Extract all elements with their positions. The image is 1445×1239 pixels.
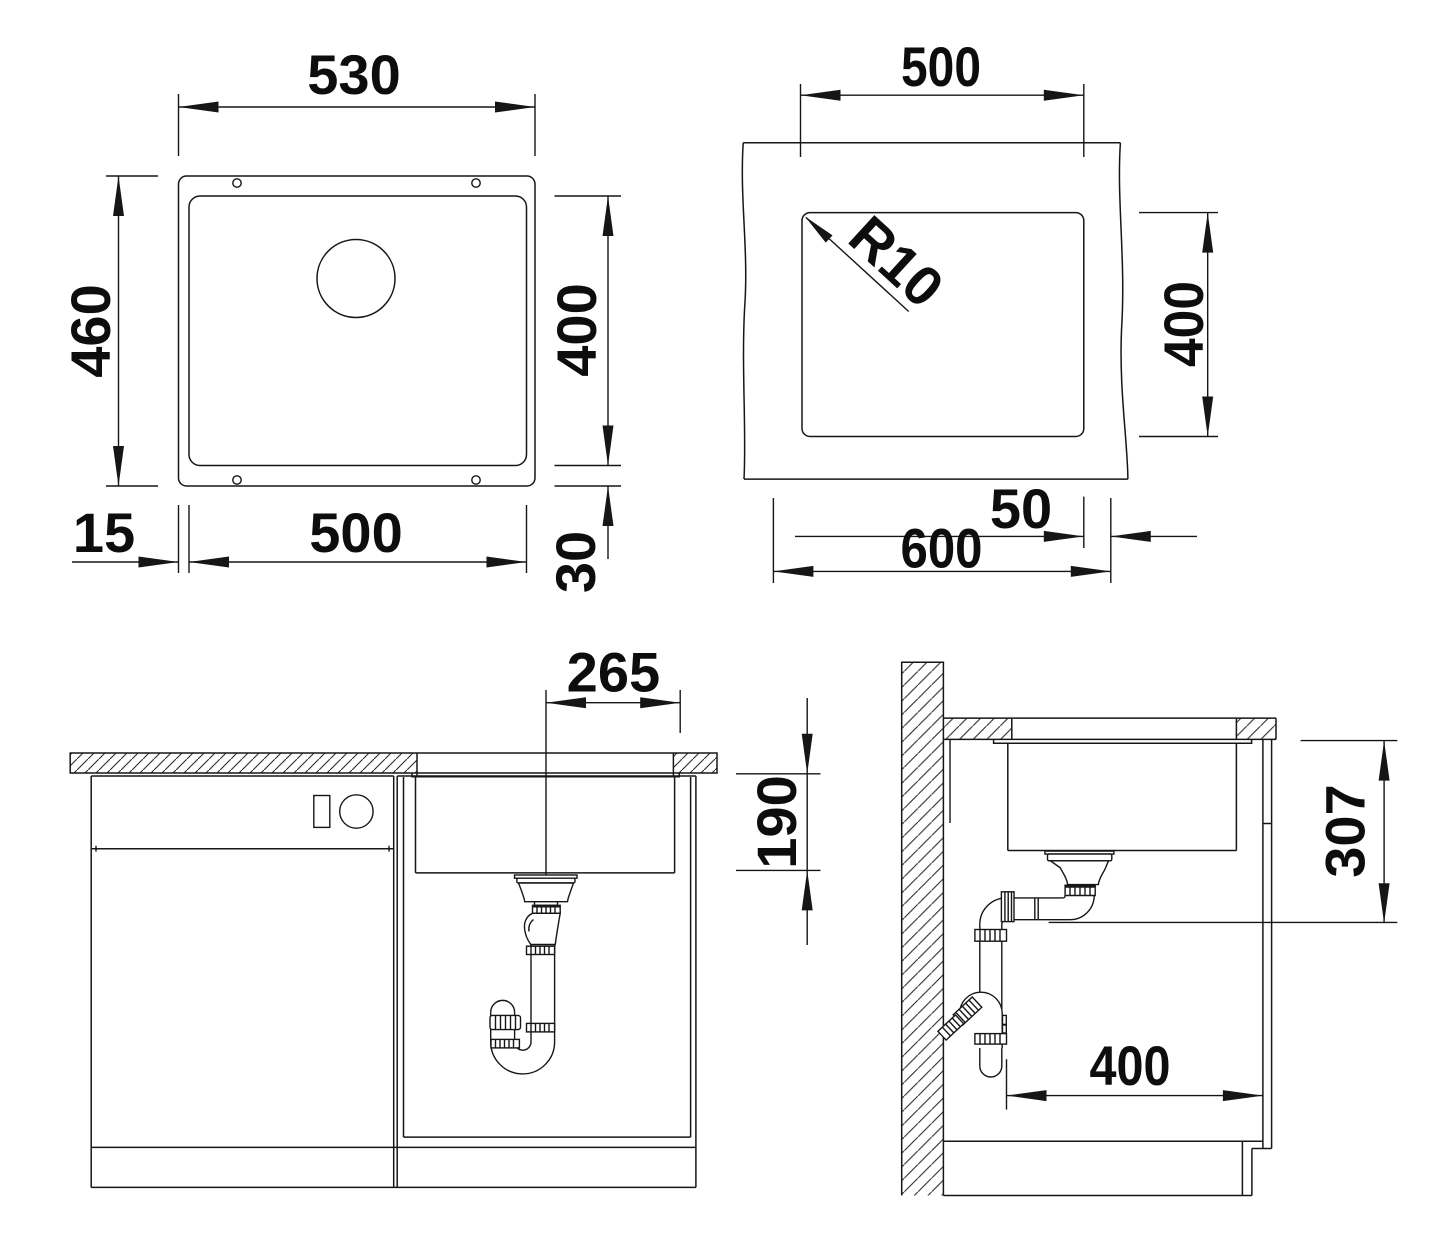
svg-text:500: 500 (901, 35, 981, 98)
svg-text:400: 400 (545, 283, 608, 376)
svg-text:400: 400 (1090, 1034, 1171, 1097)
svg-text:15: 15 (73, 501, 135, 564)
svg-text:50: 50 (990, 477, 1052, 540)
svg-text:530: 530 (307, 43, 400, 106)
svg-text:500: 500 (309, 501, 402, 564)
svg-text:30: 30 (544, 531, 607, 593)
svg-text:460: 460 (59, 284, 122, 377)
svg-text:600: 600 (901, 517, 983, 580)
svg-text:400: 400 (1152, 281, 1215, 367)
svg-text:265: 265 (567, 641, 660, 704)
svg-text:190: 190 (745, 775, 808, 868)
svg-text:307: 307 (1313, 784, 1376, 877)
